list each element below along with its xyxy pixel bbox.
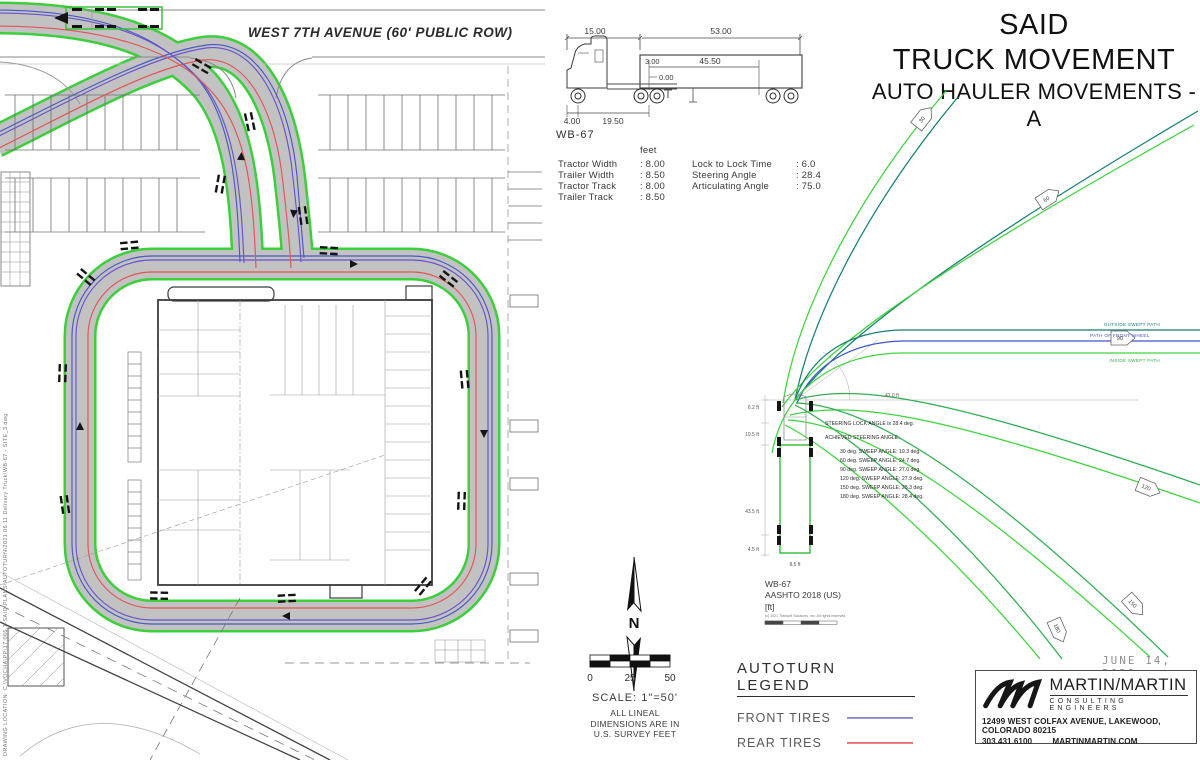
achieved-steering-heading: ACHIEVED STEERING ANGLE: (825, 435, 900, 441)
template-id-block: WB-67 AASHTO 2018 (US) [ft] (c) 2021 Tra… (765, 579, 846, 624)
template-dim: 19.5 ft (745, 432, 760, 438)
dim-trailer-length: 53.00 (710, 26, 732, 36)
scale-tick: 0 (587, 673, 593, 684)
template-units: [ft] (765, 602, 774, 612)
steering-lock-note: STEERING LOCK ANGLE is 28.4 deg. (825, 421, 914, 427)
front-wheel-path-label: PATH OF FRONT WHEEL (1090, 333, 1150, 338)
scale-note-line: U.S. SURVEY FEET (577, 729, 693, 740)
site-plan-drawing (0, 0, 545, 760)
sweep-table-row: 120 deg. SWEEP ANGLE: 27.9 deg. (840, 476, 924, 482)
legend-item-rear-tires: REAR TIRES (737, 730, 915, 755)
scale-note-line: DIMENSIONS ARE IN (577, 719, 693, 730)
martin-martin-logo-icon (982, 677, 1046, 711)
dim-front-overhang: 4.00 (564, 116, 581, 126)
template-vehicle-name: WB-67 (765, 579, 791, 589)
sweep-table-row: 150 deg. SWEEP ANGLE: 28.3 deg. (840, 485, 924, 491)
template-dim: 6.2 ft (748, 405, 760, 411)
template-dim: 4.5 ft (748, 547, 760, 553)
legend-swatch-line (847, 741, 913, 745)
tire-marks (58, 58, 470, 603)
scale-tick: 25 (624, 673, 636, 684)
legend-label: REAR TIRES (737, 736, 847, 750)
scale-note-line: ALL LINEAL (577, 708, 693, 719)
template-standard: AASHTO 2018 (US) (765, 590, 841, 600)
spec-label: Trailer Width (558, 170, 640, 181)
plan-sheet: DRAWING LOCATION: C:\VOCHA\PP\17.066.1-S… (0, 0, 1200, 760)
template-dim: 43.5 ft (745, 509, 760, 515)
swept-path-body (0, 18, 484, 616)
sweep-table-row: 180 deg. SWEEP ANGLE: 28.4 deg. (840, 494, 924, 500)
spec-label: Tractor Track (558, 181, 640, 192)
autoturn-legend: AUTOTURN LEGEND FRONT TIRES REAR TIRES V… (737, 660, 915, 760)
firm-tagline: CONSULTING ENGINEERS (1050, 698, 1188, 712)
template-dim: 8.5 ft (789, 562, 801, 568)
template-attribution: (c) 2021 Transoft Solutions, Inc. All ri… (765, 614, 846, 618)
dim-articulation-zero: 0.00 (659, 73, 674, 82)
legend-swatch-line (847, 716, 913, 720)
vehicle-name-label: WB-67 (556, 129, 595, 140)
spec-label: Tractor Width (558, 159, 640, 170)
legend-item-vehicle-body: VEHICLE BODY (737, 755, 915, 760)
firm-address: 12499 WEST COLFAX AVENUE, LAKEWOOD, COLO… (982, 717, 1188, 735)
drawing-location-note: DRAWING LOCATION: C:\VOCHA\PP\17.066.1-S… (3, 413, 9, 756)
legend-label: FRONT TIRES (737, 711, 847, 725)
template-dim: 41.0 ft (885, 393, 900, 399)
angle-markers: 30 60 90 120 150 180 (911, 103, 1163, 644)
steering-annotations: STEERING LOCK ANGLE is 28.4 deg. ACHIEVE… (825, 421, 924, 500)
firm-title-block: MARTIN/MARTIN CONSULTING ENGINEERS 12499… (975, 670, 1197, 744)
inside-swept-path-label: INSIDE SWEPT PATH (1109, 358, 1160, 363)
scale-note: ALL LINEAL DIMENSIONS ARE IN U.S. SURVEY… (577, 708, 693, 740)
sweep-table-row: 60 deg. SWEEP ANGLE: 24.7 deg. (840, 458, 921, 464)
firm-website: MARTINMARTIN.COM (1052, 737, 1137, 746)
dim-hitch-offset: 3.00 (645, 57, 660, 66)
outside-swept-path-label: OUTSIDE SWEPT PATH (1104, 322, 1160, 327)
turning-template-diagram: 30 60 90 120 150 180 (660, 85, 1200, 675)
firm-name: MARTIN/MARTIN (1050, 676, 1188, 696)
sweep-table-row: 30 deg. SWEEP ANGLE: 19.3 deg. (840, 449, 921, 455)
legend-item-front-tires: FRONT TIRES (737, 705, 915, 730)
north-label: N (629, 615, 640, 632)
dim-tractor-length: 15.00 (584, 26, 606, 36)
street-name-label: WEST 7TH AVENUE (60' PUBLIC ROW) (248, 25, 512, 40)
dim-tractor-wheelbase: 19.50 (602, 116, 624, 126)
template-truck (777, 394, 813, 553)
units-header: feet (640, 145, 657, 156)
sweep-paths (772, 91, 1200, 659)
dim-kingpin-to-tandem: 45.50 (699, 56, 721, 66)
title-line-2: TRUCK MOVEMENT (866, 43, 1200, 78)
title-line-1: SAID (866, 8, 1200, 43)
sweep-table-row: 90 deg. SWEEP ANGLE: 27.0 deg. (840, 467, 921, 473)
scale-text: SCALE: 1"=50' (577, 692, 693, 704)
firm-phone: 303.431.6100 (982, 737, 1032, 746)
spec-label: Trailer Track (558, 192, 640, 203)
